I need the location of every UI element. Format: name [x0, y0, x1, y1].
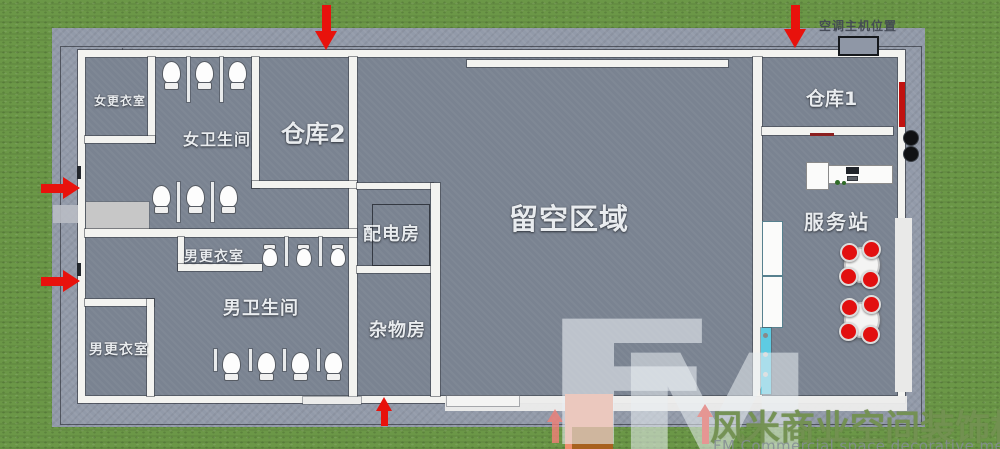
chair-icon — [839, 322, 858, 341]
wall — [85, 229, 357, 237]
plant-dot — [835, 180, 840, 185]
room-label-power-room: 配电房 — [363, 220, 420, 246]
stall-divider — [283, 349, 286, 371]
keyboard-icon — [847, 176, 858, 181]
chair-icon — [861, 270, 880, 289]
room-label-warehouse2: 仓库2 — [281, 114, 346, 149]
side-walkway — [895, 218, 912, 392]
urinal-icon — [294, 239, 313, 267]
ac-unit-label: 空调主机位置 — [819, 17, 897, 34]
chair-icon — [862, 295, 881, 314]
watermark-brand-en: FM Commercial space decorative mechanism — [713, 437, 1000, 449]
toilet-icon — [226, 61, 248, 97]
toilet-icon — [220, 352, 242, 388]
stall-divider — [249, 349, 252, 371]
toilet-icon — [289, 352, 311, 388]
urinal-icon — [260, 239, 279, 267]
room-label-mens-changing-lower: 男更衣室 — [89, 339, 149, 359]
door-threshold — [53, 205, 78, 223]
stall-divider — [319, 237, 322, 266]
toilet-icon — [193, 61, 215, 97]
room-label-mens-restroom: 男卫生间 — [223, 294, 299, 320]
wall — [252, 57, 259, 188]
cabinet — [762, 221, 783, 276]
room-label-service-station: 服务站 — [804, 206, 870, 235]
stall-divider — [187, 57, 190, 102]
wall — [148, 57, 155, 143]
plant-dot — [842, 181, 846, 185]
door-leaf — [303, 397, 361, 404]
chair-icon — [840, 298, 859, 317]
toilet-icon — [217, 185, 239, 221]
ac-unit-icon — [838, 36, 879, 56]
wall — [357, 266, 433, 273]
toilet-icon — [255, 352, 277, 388]
floor-mat — [86, 202, 149, 229]
floor-plan-scene: 空调主机位置 女更衣室 女卫生间 仓库2 男更衣室 男卫生间 男更衣室 配电房 … — [0, 0, 1000, 449]
stall-divider — [177, 182, 180, 222]
wall-marker — [810, 133, 834, 136]
room-label-open-area: 留空区域 — [509, 196, 629, 238]
room-label-mens-changing-upper: 男更衣室 — [184, 246, 244, 266]
round-tank-icon — [904, 131, 918, 145]
door-leaf — [447, 396, 519, 406]
chair-icon — [861, 325, 880, 344]
stall-divider — [214, 349, 217, 371]
wall — [467, 60, 728, 67]
wall — [357, 183, 433, 189]
computer-monitor-icon — [846, 167, 859, 174]
chair-icon — [862, 240, 881, 259]
urinal-icon — [328, 239, 347, 267]
round-tank-icon — [904, 147, 918, 161]
room-label-womens-changing: 女更衣室 — [94, 92, 146, 109]
room-label-sundry-room: 杂物房 — [369, 316, 426, 342]
stall-divider — [317, 349, 320, 371]
wall — [431, 183, 440, 396]
wall — [252, 181, 357, 188]
stall-divider — [220, 57, 223, 102]
toilet-icon — [322, 352, 344, 388]
service-counter — [806, 162, 829, 190]
stall-divider — [285, 237, 288, 266]
chair-icon — [840, 243, 859, 262]
room-label-womens-restroom: 女卫生间 — [183, 126, 251, 150]
chair-icon — [839, 267, 858, 286]
wall — [85, 136, 155, 143]
wall — [85, 299, 154, 306]
room-label-warehouse1: 仓库1 — [806, 84, 857, 111]
stall-divider — [211, 182, 214, 222]
toilet-icon — [150, 185, 172, 221]
toilet-icon — [160, 61, 182, 97]
toilet-icon — [184, 185, 206, 221]
door-marker — [899, 82, 905, 127]
